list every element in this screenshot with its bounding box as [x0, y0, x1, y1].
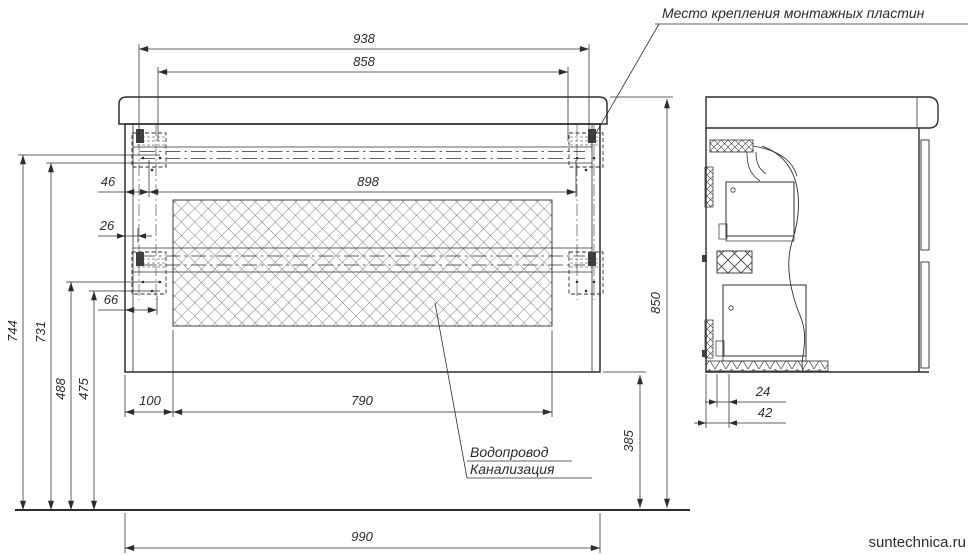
- side-drawer-box-upper: [719, 182, 794, 241]
- dim-label-26: 26: [99, 218, 115, 233]
- watermark: suntechnica.ru: [868, 534, 966, 551]
- dim-label-488: 488: [53, 377, 68, 399]
- mounting-plate-top-right: [569, 129, 603, 171]
- side-bottom-panel-hatch: [706, 361, 828, 371]
- dim-475: 475: [76, 291, 94, 510]
- sewerage-note: Канализация: [470, 461, 555, 477]
- side-cross-rail-hatch: [717, 251, 752, 273]
- dim-label-66: 66: [104, 292, 119, 307]
- dim-label-938: 938: [353, 31, 375, 46]
- dim-744: 744: [5, 155, 23, 510]
- technical-drawing-svg: 938 858 46 898 26: [0, 0, 970, 555]
- side-top-bracket-hatch: [710, 140, 753, 152]
- side-countertop: [706, 97, 938, 128]
- dim-898: 898: [149, 160, 576, 197]
- dim-66: 66: [98, 292, 157, 315]
- dim-990: 990: [125, 513, 600, 553]
- side-drain-pipe: [747, 146, 797, 181]
- drawing-canvas: 938 858 46 898 26: [0, 0, 970, 555]
- dim-label-850: 850: [648, 291, 663, 313]
- dim-385: 385: [603, 372, 646, 508]
- dim-label-385: 385: [621, 429, 636, 451]
- service-opening-hatch: [173, 200, 552, 326]
- upper-rail: [133, 147, 592, 163]
- dim-label-42: 42: [758, 405, 773, 420]
- dim-label-475: 475: [76, 377, 91, 399]
- dim-label-790: 790: [351, 393, 373, 408]
- dim-label-744: 744: [5, 320, 20, 342]
- mounting-plate-top-left: [132, 129, 167, 171]
- dim-label-24: 24: [755, 384, 770, 399]
- side-body: [706, 128, 929, 372]
- dim-label-990: 990: [351, 529, 373, 544]
- hole-extension-lines: [18, 155, 160, 291]
- callout-leader: [592, 24, 659, 140]
- plumbing-callout: Водопровод Канализация: [435, 303, 592, 478]
- side-drawer-front-upper: [921, 140, 929, 250]
- dim-label-731: 731: [33, 321, 48, 343]
- dim-label-858: 858: [353, 54, 375, 69]
- side-drawer-box-lower: [716, 285, 806, 361]
- dim-731: 731: [33, 163, 51, 510]
- front-countertop: [119, 97, 607, 124]
- dim-label-898: 898: [357, 174, 379, 189]
- side-wall-plate-upper: [705, 167, 713, 207]
- side-view: [702, 97, 938, 372]
- side-wall-clip-2: [702, 350, 707, 357]
- plumbing-leader: [435, 303, 467, 478]
- dim-label-46: 46: [101, 174, 116, 189]
- water-supply-note: Водопровод: [470, 444, 549, 460]
- side-drawer-front-lower: [921, 262, 929, 368]
- dim-24: 24: [705, 374, 786, 428]
- mounting-plates-callout: Место крепления монтажных пластин: [592, 5, 968, 140]
- dim-label-100: 100: [139, 393, 161, 408]
- mounting-plate-bottom-right: [569, 252, 603, 294]
- mounting-plates-note: Место крепления монтажных пластин: [662, 5, 925, 21]
- dim-46: 46: [98, 174, 149, 192]
- dim-488: 488: [53, 282, 71, 510]
- dim-790: 790: [173, 330, 552, 417]
- dim-850: 850: [610, 97, 673, 508]
- break-line: [762, 146, 805, 371]
- side-wall-clip-1: [702, 255, 707, 262]
- mounting-plate-bottom-left: [132, 252, 167, 294]
- dim-100: 100: [125, 330, 173, 417]
- dim-42: 42: [694, 405, 786, 426]
